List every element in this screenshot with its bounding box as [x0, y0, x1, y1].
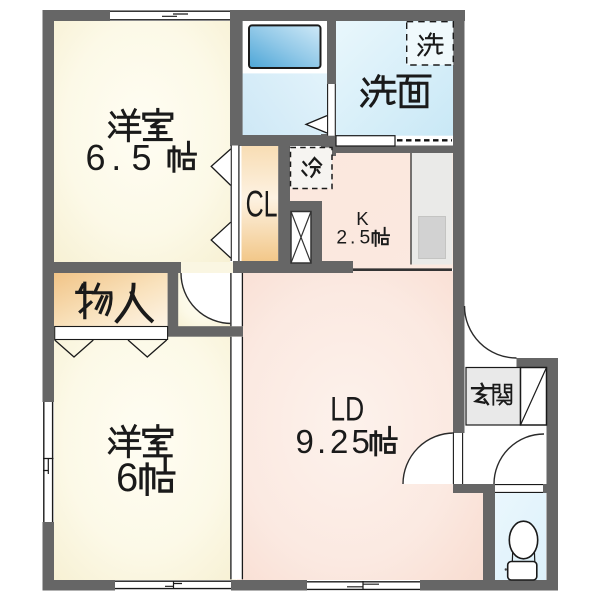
svg-text:.: .: [350, 228, 355, 249]
svg-text:.: .: [111, 137, 121, 178]
svg-text:K: K: [356, 208, 369, 229]
svg-text:9: 9: [296, 423, 314, 460]
svg-text:.: .: [317, 423, 326, 460]
svg-text:5: 5: [352, 423, 370, 460]
svg-text:2: 2: [336, 228, 347, 249]
svg-text:5: 5: [360, 228, 371, 249]
svg-text:CL: CL: [246, 184, 278, 225]
svg-text:6: 6: [86, 137, 106, 178]
svg-text:5: 5: [132, 137, 152, 178]
svg-text:2: 2: [330, 423, 348, 460]
svg-text:6: 6: [116, 456, 138, 500]
